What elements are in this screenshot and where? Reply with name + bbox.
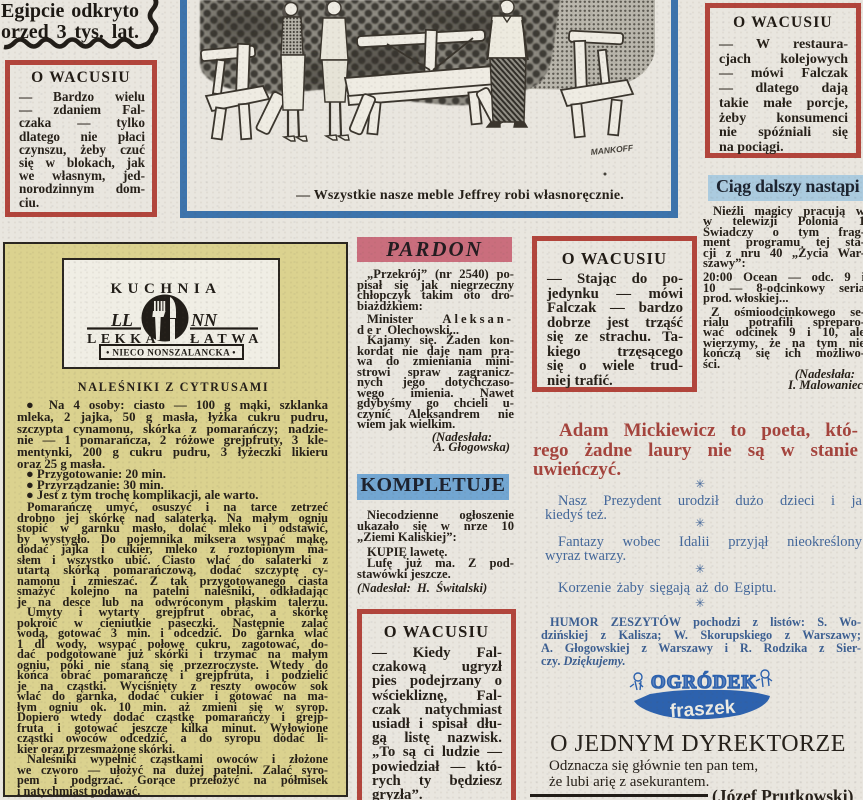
svg-text:• NIECO NONSZALANCKA •: • NIECO NONSZALANCKA • [106,348,236,358]
svg-text:fraszek: fraszek [669,697,736,723]
svg-text:LL: LL [110,310,133,330]
svg-text:MANKOFF: MANKOFF [590,143,634,157]
svg-text:OGRÓDEK: OGRÓDEK [651,671,757,693]
svg-text:NN: NN [190,310,218,330]
